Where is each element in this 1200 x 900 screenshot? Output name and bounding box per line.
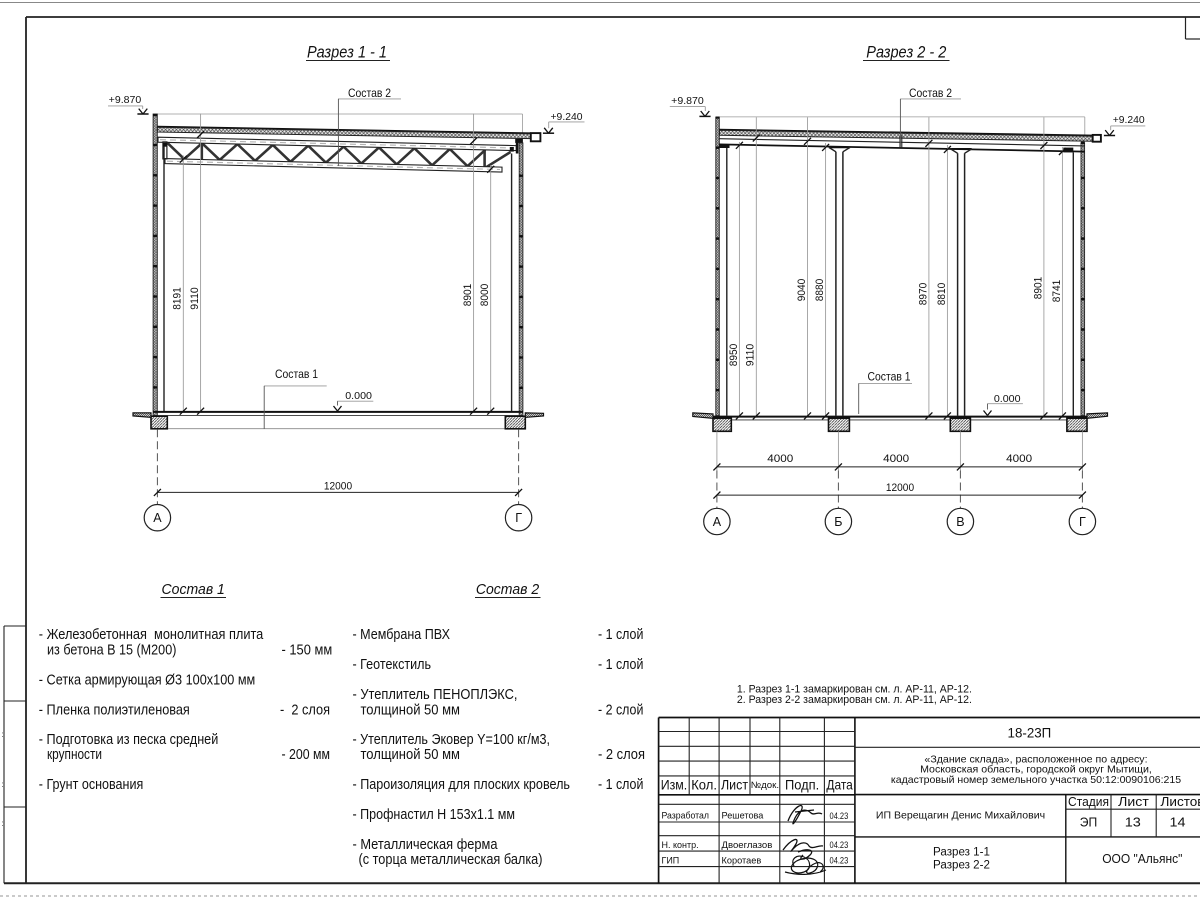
svg-text:из бетона В 15 (М200): из бетона В 15 (М200) <box>47 642 176 658</box>
svg-text:Дата: Дата <box>826 777 853 792</box>
svg-text:- Подготовка из песка средней: - Подготовка из песка средней <box>39 732 219 748</box>
svg-text:- Пароизоляция для плоских кро: - Пароизоляция для плоских кровель <box>353 777 571 793</box>
svg-text:- Профнастил Н 153х1.1 мм: - Профнастил Н 153х1.1 мм <box>353 807 516 823</box>
svg-text:толщиной 50 мм: толщиной 50 мм <box>361 702 461 718</box>
svg-text:8901: 8901 <box>1032 277 1044 300</box>
svg-text:8950: 8950 <box>728 344 740 367</box>
svg-text:- Мембрана ПВХ: - Мембрана ПВХ <box>353 627 451 643</box>
svg-text:Разрез 2-2: Разрез 2-2 <box>933 860 990 872</box>
svg-text:- Пленка полиэтиленовая: - Пленка полиэтиленовая <box>39 702 190 718</box>
svg-text:Разрез 1-1: Разрез 1-1 <box>933 847 990 859</box>
svg-text:Б: Б <box>834 515 842 529</box>
svg-text:8970: 8970 <box>917 283 929 306</box>
svg-text:Лист: Лист <box>1118 794 1149 809</box>
svg-text:Состав 2: Состав 2 <box>909 87 952 100</box>
svg-text:8880: 8880 <box>814 279 826 302</box>
svg-text::: : <box>2 819 4 828</box>
svg-text:Состав 2: Состав 2 <box>348 87 391 100</box>
svg-text:4000: 4000 <box>883 453 909 465</box>
svg-text:В: В <box>956 515 964 529</box>
svg-text:Состав 1: Состав 1 <box>275 368 318 381</box>
svg-text:- 2 слоя: - 2 слоя <box>598 747 645 763</box>
svg-text::: : <box>2 730 4 739</box>
svg-text:- Утеплитель Эковер Y=100 кг/м: - Утеплитель Эковер Y=100 кг/м3, <box>353 732 551 748</box>
svg-text:9110: 9110 <box>745 344 757 367</box>
svg-text:ГИП: ГИП <box>662 855 680 865</box>
svg-text:№док.: №док. <box>751 780 779 790</box>
svg-text:толщиной 50 мм: толщиной 50 мм <box>361 747 461 763</box>
svg-text:14: 14 <box>1170 815 1186 830</box>
svg-text:- Сетка армирующая Ø3 100х100: - Сетка армирующая Ø3 100х100 мм <box>39 673 256 689</box>
svg-text:Лист: Лист <box>721 777 748 792</box>
svg-text:8901: 8901 <box>462 284 474 307</box>
svg-text::: : <box>2 780 4 789</box>
svg-text:Подп.: Подп. <box>785 777 819 792</box>
svg-text:- 1 слой: - 1 слой <box>598 657 643 673</box>
svg-text:Кол.: Кол. <box>691 777 717 792</box>
svg-text:крупности: крупности <box>47 747 102 763</box>
svg-text:Состав 1: Состав 1 <box>162 581 225 598</box>
svg-text:кадастровый номер земельного у: кадастровый номер земельного участка 50:… <box>891 774 1181 786</box>
svg-text:- 2 слоя: - 2 слоя <box>280 702 330 718</box>
svg-text:Состав 2: Состав 2 <box>476 581 540 598</box>
svg-text:8810: 8810 <box>936 283 948 306</box>
svg-text:04.23: 04.23 <box>830 811 849 822</box>
svg-text:04.23: 04.23 <box>830 840 849 851</box>
svg-text:Решетова: Решетова <box>722 811 764 821</box>
svg-text:2. Разрез 2-2 замаркирован см.: 2. Разрез 2-2 замаркирован см. л. АР-11,… <box>737 694 972 706</box>
svg-text:Двоеглазов: Двоеглазов <box>722 840 773 850</box>
svg-text:- Металлическая ферма: - Металлическая ферма <box>353 837 499 853</box>
svg-text:А: А <box>713 515 722 529</box>
svg-text:Разрез 1 - 1: Разрез 1 - 1 <box>307 42 387 61</box>
svg-text:ИП Верещагин Денис Михайлович: ИП Верещагин Денис Михайлович <box>876 811 1045 822</box>
svg-text:Н. контр.: Н. контр. <box>662 840 699 850</box>
svg-text:(с торца металлическая балка): (с торца металлическая балка) <box>359 852 543 868</box>
svg-text:+9.870: +9.870 <box>109 94 142 106</box>
svg-text:9110: 9110 <box>189 287 201 310</box>
svg-text:Листов: Листов <box>1161 794 1200 809</box>
svg-text:12000: 12000 <box>324 481 352 493</box>
svg-text:Разработал: Разработал <box>662 811 710 821</box>
svg-text:4000: 4000 <box>1006 453 1032 465</box>
svg-text:8191: 8191 <box>172 287 184 310</box>
svg-text:- 150 мм: - 150 мм <box>282 642 333 658</box>
svg-text:8000: 8000 <box>479 284 491 307</box>
svg-text:ЭП: ЭП <box>1080 815 1098 830</box>
svg-text:ООО "Альянс": ООО "Альянс" <box>1102 852 1182 866</box>
svg-text:- Грунт основания: - Грунт основания <box>39 777 144 793</box>
svg-text:- Геотекстиль: - Геотекстиль <box>353 657 432 673</box>
svg-text:04.23: 04.23 <box>830 856 849 867</box>
svg-text:- 200 мм: - 200 мм <box>282 747 331 763</box>
svg-text:12000: 12000 <box>886 482 914 494</box>
svg-text:13: 13 <box>1125 815 1141 830</box>
svg-text:Изм.: Изм. <box>661 777 688 792</box>
svg-text:18-23П: 18-23П <box>1008 725 1052 741</box>
svg-text:4000: 4000 <box>767 453 793 465</box>
svg-text:Стадия: Стадия <box>1068 794 1109 809</box>
svg-text:Г: Г <box>1079 515 1086 529</box>
svg-text:- 2 слой: - 2 слой <box>598 702 643 718</box>
svg-text:Разрез 2 - 2: Разрез 2 - 2 <box>866 42 946 61</box>
svg-text:+9.870: +9.870 <box>671 95 704 107</box>
svg-text:+9.240: +9.240 <box>551 111 583 123</box>
svg-text:А: А <box>153 511 162 525</box>
svg-text:Г: Г <box>515 511 522 525</box>
svg-text:- 1 слой: - 1 слой <box>598 627 643 643</box>
svg-text:- Утеплитель ПЕНОПЛЭКС,: - Утеплитель ПЕНОПЛЭКС, <box>353 687 518 703</box>
svg-text:- Железобетонная монолитная п: - Железобетонная монолитная плита <box>39 627 264 643</box>
svg-text:Коротаев: Коротаев <box>722 855 762 865</box>
svg-text:8741: 8741 <box>1051 280 1063 303</box>
svg-text:- 1 слой: - 1 слой <box>598 777 643 793</box>
svg-text:+9.240: +9.240 <box>1113 114 1145 126</box>
svg-text:9040: 9040 <box>796 279 808 302</box>
svg-text:Состав 1: Состав 1 <box>868 370 911 383</box>
svg-text:0.000: 0.000 <box>345 390 372 402</box>
